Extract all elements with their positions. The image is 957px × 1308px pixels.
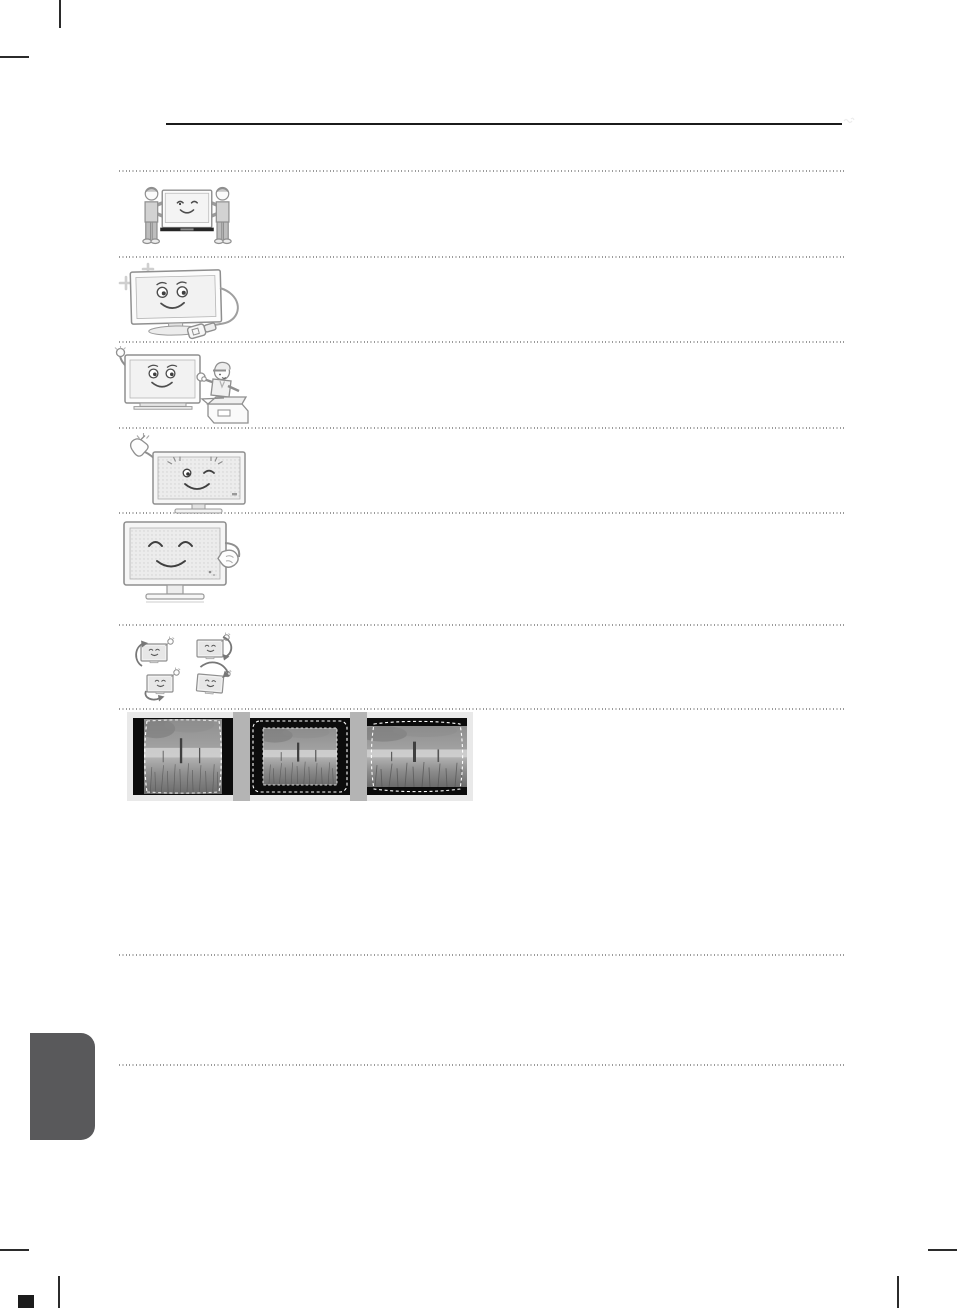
four-tvs-rotation-arrows-illustration xyxy=(131,631,254,702)
dotted-separator xyxy=(119,954,846,956)
tv-sparkling-unplugged-cord-illustration xyxy=(116,261,249,340)
dotted-separator xyxy=(119,256,846,258)
crop-mark-top-horizontal xyxy=(0,56,29,58)
dotted-separator xyxy=(119,341,846,343)
corner-print-artifact xyxy=(18,1295,34,1308)
crop-mark-bottom-left-horizontal xyxy=(0,1249,29,1251)
hand-patting-happy-tv-illustration xyxy=(119,518,245,607)
section-heading-rule xyxy=(166,123,842,125)
pillarbox-picture-example xyxy=(133,718,233,795)
letterbox-picture-example xyxy=(367,718,467,795)
two-people-carrying-tv-illustration xyxy=(139,181,235,254)
windowbox-picture-example xyxy=(250,718,350,795)
dotted-separator xyxy=(119,170,846,172)
dotted-separator xyxy=(119,427,846,429)
crop-mark-bottom-left-vertical xyxy=(58,1276,60,1308)
screen-aspect-examples-strip xyxy=(127,712,473,801)
crop-mark-bottom-right-horizontal xyxy=(928,1249,957,1251)
photo-divider xyxy=(233,712,250,801)
tv-waving-packing-carton-illustration xyxy=(112,346,253,427)
photo-divider xyxy=(350,712,367,801)
crop-mark-bottom-right-vertical xyxy=(897,1276,899,1308)
manual-page xyxy=(0,0,957,1308)
hand-snap-winking-tv-illustration xyxy=(126,431,252,514)
crop-mark-top-vertical xyxy=(59,0,61,28)
dotted-separator xyxy=(119,624,846,626)
dotted-separator xyxy=(119,708,846,710)
chapter-side-tab xyxy=(30,1033,95,1140)
dotted-separator xyxy=(119,1064,846,1066)
faint-print-artifact xyxy=(842,115,856,127)
